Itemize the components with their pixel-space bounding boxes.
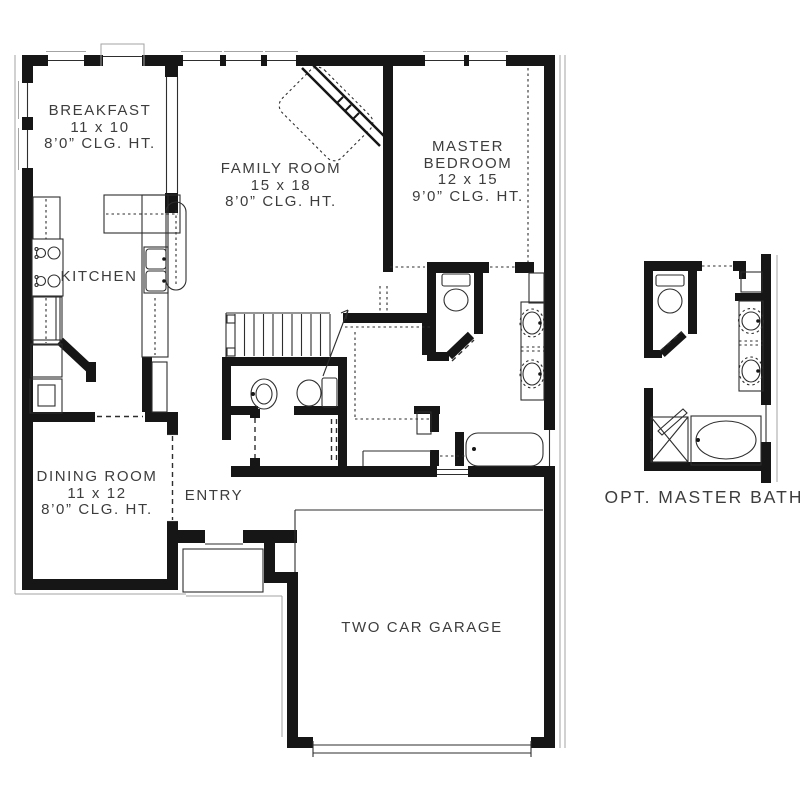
room-label-kitchen: KITCHEN <box>60 269 137 286</box>
toilet <box>442 274 470 311</box>
toilet <box>297 378 337 407</box>
niche <box>417 412 431 434</box>
broom-closet <box>152 362 167 412</box>
room-dimensions: 12 x 15 <box>412 172 524 189</box>
room-name: BEDROOM <box>412 156 524 173</box>
room-name: DINING ROOM <box>37 469 158 486</box>
room-name: ENTRY <box>185 488 244 505</box>
entry-porch <box>183 544 263 592</box>
bathtub <box>691 416 761 465</box>
floor-plan: BREAKFAST 11 x 10 8’0” CLG. HT. FAMILY R… <box>0 0 800 800</box>
powder-bath <box>251 378 337 409</box>
room-ceiling-height: 8’0” CLG. HT. <box>221 194 341 211</box>
room-label-breakfast: BREAKFAST 11 x 10 8’0” CLG. HT. <box>44 103 156 153</box>
room-label-master-bedroom: MASTER BEDROOM 12 x 15 9’0” CLG. HT. <box>412 139 524 205</box>
shower <box>645 409 688 462</box>
window-seat-bump <box>101 44 144 66</box>
linen-cabinet <box>529 273 544 303</box>
garage-door <box>313 741 531 757</box>
pantry-shelves <box>30 344 62 413</box>
room-label-opt-master-bath: OPT. MASTER BATH <box>605 489 800 506</box>
bathtub <box>466 433 543 466</box>
room-label-dining-room: DINING ROOM 11 x 12 8’0” CLG. HT. <box>37 469 158 519</box>
room-ceiling-height: 8’0” CLG. HT. <box>44 136 156 153</box>
range <box>32 239 63 296</box>
room-name: OPT. MASTER BATH <box>605 489 800 506</box>
room-label-family-room: FAMILY ROOM 15 x 18 8’0” CLG. HT. <box>221 161 341 211</box>
room-label-garage: TWO CAR GARAGE <box>341 620 503 637</box>
fireplace <box>275 61 387 165</box>
room-dimensions: 11 x 10 <box>44 120 156 137</box>
pedestal-sink <box>251 379 277 409</box>
room-name: KITCHEN <box>60 269 137 286</box>
room-name: TWO CAR GARAGE <box>341 620 503 637</box>
room-label-entry: ENTRY <box>185 488 244 505</box>
opt-master-bath-inset <box>644 254 777 483</box>
room-name: BREAKFAST <box>44 103 156 120</box>
kitchen-fixtures <box>30 195 186 413</box>
vanity <box>739 301 764 391</box>
refrigerator <box>32 297 62 340</box>
room-ceiling-height: 9’0” CLG. HT. <box>412 189 524 206</box>
room-ceiling-height: 8’0” CLG. HT. <box>37 502 158 519</box>
toilet <box>656 275 684 313</box>
room-dimensions: 15 x 18 <box>221 178 341 195</box>
vanity <box>520 302 544 400</box>
room-name: MASTER <box>412 139 524 156</box>
room-name: FAMILY ROOM <box>221 161 341 178</box>
kitchen-sink <box>144 247 168 293</box>
room-dimensions: 11 x 12 <box>37 486 158 503</box>
porch-stoop <box>183 549 263 592</box>
